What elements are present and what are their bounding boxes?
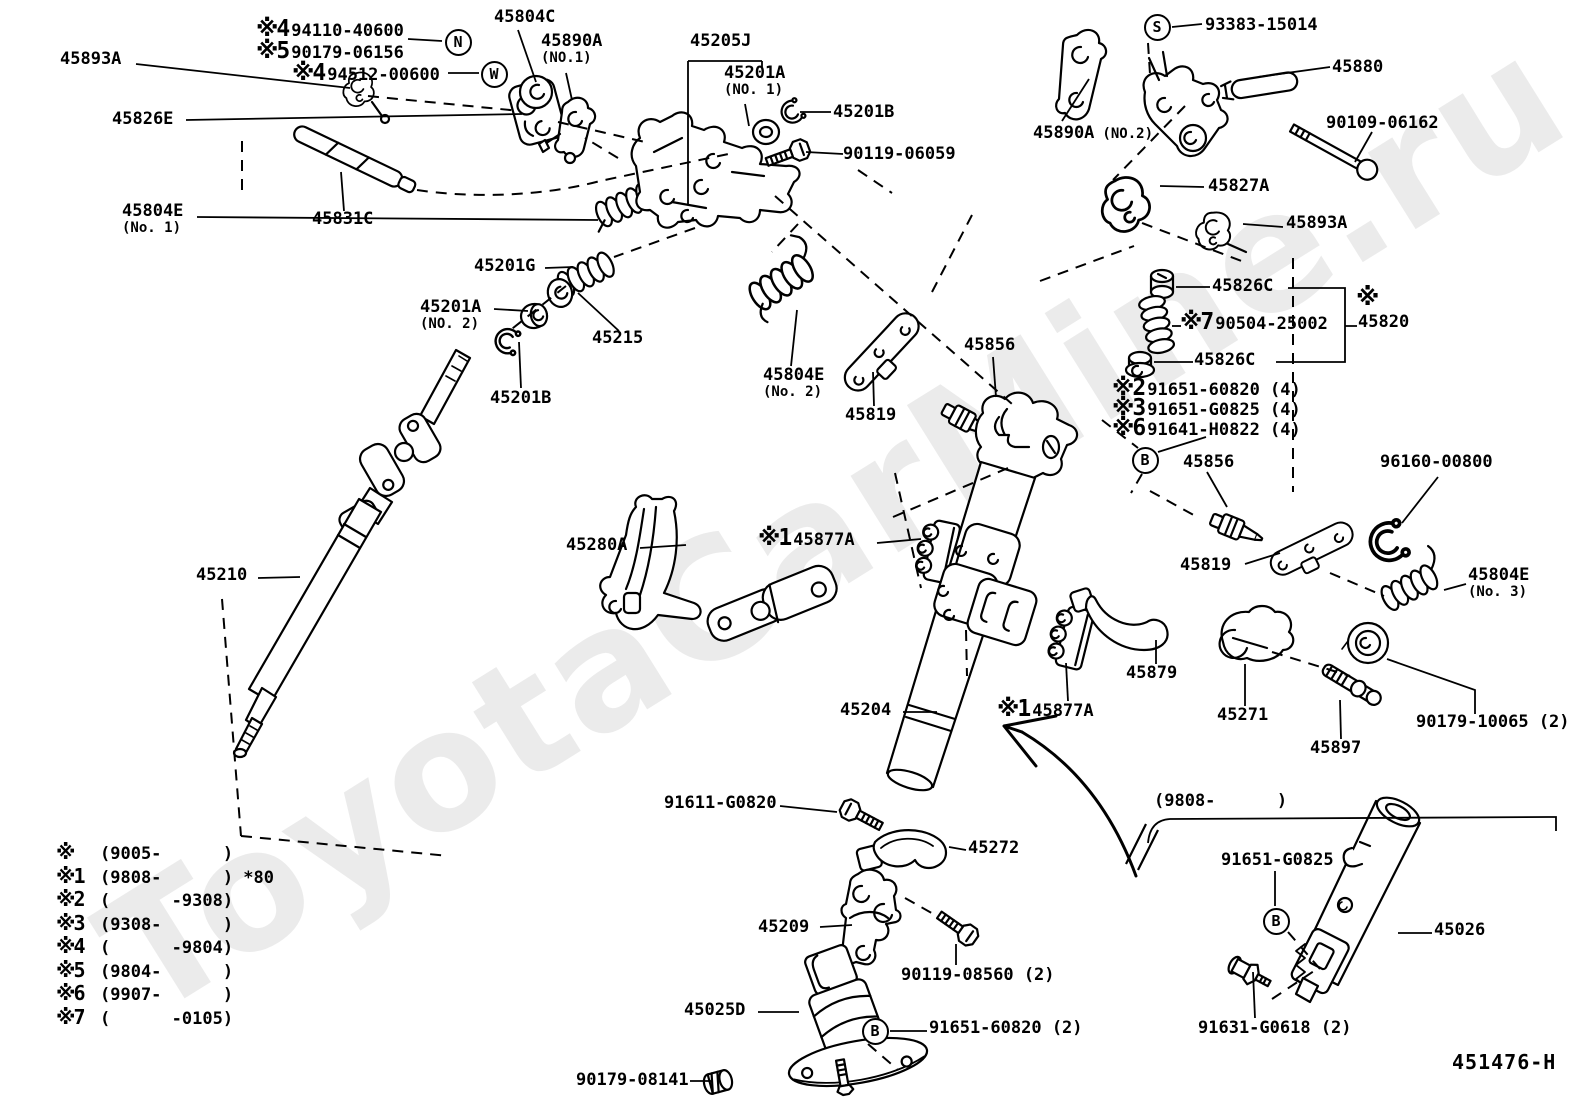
label-45880: 45880 bbox=[1332, 58, 1383, 77]
circled-letter-W: W bbox=[481, 61, 508, 88]
label-45201g: 45201G bbox=[474, 257, 535, 276]
label-45280a: 45280A bbox=[566, 536, 627, 555]
circled-letter-S: S bbox=[1144, 14, 1171, 41]
label-45201a-no1: 45201A(NO. 1) bbox=[724, 64, 785, 98]
label-45209: 45209 bbox=[758, 918, 809, 937]
circled-letter-B: B bbox=[862, 1018, 889, 1045]
legend-row: ※5(9804- ) bbox=[56, 960, 274, 984]
label-90179-08141: 90179-08141 bbox=[576, 1071, 689, 1090]
legend: ※(9005- )※1(9808- ) *80※2( -9308)※3(9308… bbox=[56, 842, 274, 1030]
label-45804e-no3: 45804E(No. 3) bbox=[1468, 566, 1529, 600]
label-45893a-right: 45893A bbox=[1286, 214, 1347, 233]
label-91611-g0820: 91611-G0820 bbox=[664, 794, 777, 813]
legend-row: ※1(9808- ) *80 bbox=[56, 866, 274, 890]
label-96160-00800: 96160-00800 bbox=[1380, 453, 1493, 472]
label-45877a-2: ※145877A bbox=[997, 700, 1094, 721]
label-45827a: 45827A bbox=[1208, 177, 1269, 196]
label-451476-h: 451476-H bbox=[1452, 1053, 1556, 1074]
label-9808-bracket: (9808- ) bbox=[1154, 792, 1287, 811]
label-45210: 45210 bbox=[196, 566, 247, 585]
legend-row: ※7( -0105) bbox=[56, 1007, 274, 1031]
parts-diagram-page: ToyotaCarMine.ru bbox=[0, 0, 1592, 1099]
label-45877a-1: ※145877A bbox=[758, 529, 855, 550]
label-45897: 45897 bbox=[1310, 739, 1361, 758]
label-90109-06162: 90109-06162 bbox=[1326, 114, 1439, 133]
label-45204: 45204 bbox=[840, 701, 891, 720]
label-90504-25002: ※790504-25002 bbox=[1180, 313, 1328, 334]
label-45201b-no2: 45201B bbox=[490, 389, 551, 408]
label-45856-right: 45856 bbox=[1183, 453, 1234, 472]
label-45856-center: 45856 bbox=[964, 336, 1015, 355]
circled-letter-N: N bbox=[445, 29, 472, 56]
label-45890a-no2: 45890A(NO.2) bbox=[1033, 124, 1153, 144]
legend-row: ※4( -9804) bbox=[56, 936, 274, 960]
label-45820: 45820 bbox=[1358, 313, 1409, 332]
legend-row: ※3(9308- ) bbox=[56, 913, 274, 937]
label-90119-06059: 90119-06059 bbox=[843, 145, 956, 164]
label-45820-mark: ※ bbox=[1356, 288, 1379, 310]
label-90179-10065: 90179-10065 (2) bbox=[1416, 713, 1570, 732]
label-45215: 45215 bbox=[592, 329, 643, 348]
label-45831c: 45831C bbox=[312, 210, 373, 229]
label-45826c-lower: 45826C bbox=[1194, 351, 1255, 370]
label-45826c-upper: 45826C bbox=[1212, 277, 1273, 296]
circled-letter-B: B bbox=[1132, 447, 1159, 474]
label-91631-g0618: 91631-G0618 (2) bbox=[1198, 1019, 1352, 1038]
label-45804e-no2: 45804E(No. 2) bbox=[763, 366, 824, 400]
label-91651-60820-2: 91651-60820 (2) bbox=[929, 1019, 1083, 1038]
label-91651-g0825-b: 91651-G0825 bbox=[1221, 851, 1334, 870]
label-45893a-top-left: 45893A bbox=[60, 50, 121, 69]
label-45819-right: 45819 bbox=[1180, 556, 1231, 575]
label-45804c: 45804C bbox=[494, 8, 555, 27]
label-45271: 45271 bbox=[1217, 706, 1268, 725]
u-joint-45209-drawing bbox=[842, 870, 901, 965]
label-45826e: 45826E bbox=[112, 110, 173, 129]
label-45819-center: 45819 bbox=[845, 406, 896, 425]
label-90119-08560: 90119-08560 (2) bbox=[901, 966, 1055, 985]
label-90179-06156: ※590179-06156 bbox=[256, 42, 404, 63]
tube-45026-drawing bbox=[1290, 792, 1424, 1002]
label-45201a-no2: 45201A(NO. 2) bbox=[420, 298, 481, 332]
label-45890a-no1: 45890A(NO.1) bbox=[541, 32, 602, 66]
legend-row: ※(9005- ) bbox=[56, 842, 274, 866]
label-45025d: 45025D bbox=[684, 1001, 745, 1020]
legend-row: ※6(9907- ) bbox=[56, 983, 274, 1007]
label-93383-15014: 93383-15014 bbox=[1205, 16, 1318, 35]
direction-arrow bbox=[1004, 716, 1136, 876]
label-45205j: 45205J bbox=[690, 32, 751, 51]
label-45804e-no1: 45804E(No. 1) bbox=[122, 202, 183, 236]
label-45201b-no1: 45201B bbox=[833, 103, 894, 122]
circled-letter-B: B bbox=[1263, 908, 1290, 935]
legend-row: ※2( -9308) bbox=[56, 889, 274, 913]
label-45026: 45026 bbox=[1434, 921, 1485, 940]
label-45879: 45879 bbox=[1126, 664, 1177, 683]
label-91641-h0822-4: ※691641-H0822 (4) bbox=[1112, 419, 1301, 440]
label-45272: 45272 bbox=[968, 839, 1019, 858]
label-94512-00600: ※494512-00600 bbox=[292, 64, 440, 85]
